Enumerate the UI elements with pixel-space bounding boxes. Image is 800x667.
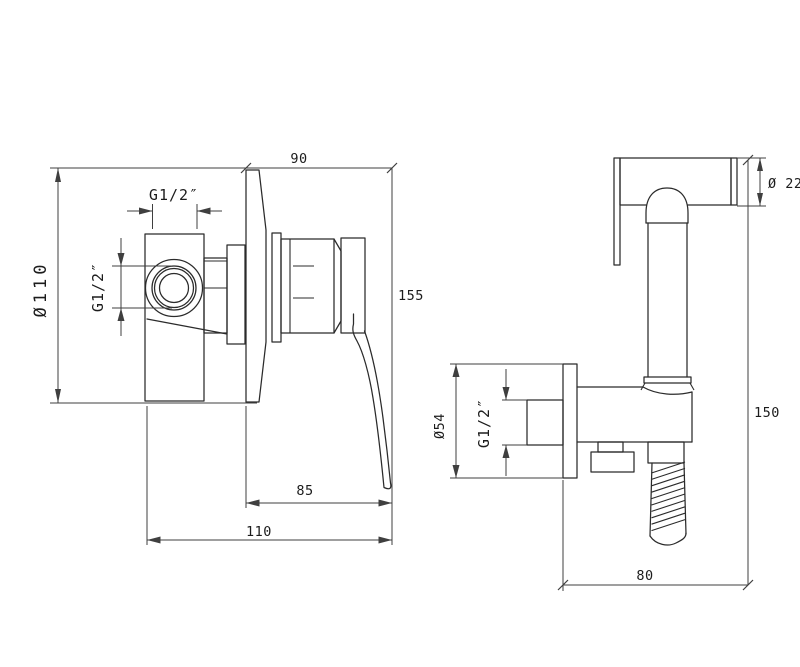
spiral-hose — [650, 462, 686, 545]
dim-label-head-diameter: Ø 22 — [768, 176, 800, 192]
mixer-dimensions: 90 Ø110 G1/2″ G1/2″ 155 85 — [31, 151, 424, 545]
trim-neck — [334, 239, 341, 333]
arrowhead — [197, 208, 211, 215]
hose-ferrule — [648, 442, 684, 463]
inlet-port-thread-outer — [152, 266, 196, 310]
mixer-side-view — [145, 170, 391, 489]
mixer-connector — [204, 258, 227, 333]
arrowhead — [757, 158, 763, 171]
mixer-body-chamfer — [147, 319, 227, 334]
bracket-neck — [598, 442, 623, 452]
faucet-technical-drawing: 90 Ø110 G1/2″ G1/2″ 155 85 — [0, 0, 800, 667]
sprayer-head-cap — [731, 158, 737, 205]
dim-label-bracket-depth: 80 — [636, 568, 653, 584]
trim-step-ring — [272, 233, 281, 342]
sprayer-head — [620, 158, 731, 205]
bracket-nut — [591, 452, 634, 472]
dim-label-plate-diameter: Ø110 — [31, 261, 51, 318]
arrowhead — [379, 500, 393, 507]
sprayer-dome — [646, 188, 688, 223]
mixer-sleeve — [227, 245, 245, 344]
dim-label-top-thread: G1/2″ — [149, 186, 199, 204]
arrowhead — [55, 168, 61, 182]
arrowhead — [118, 253, 125, 266]
dim-label-total-depth: 110 — [246, 524, 272, 540]
arrowhead — [139, 208, 153, 215]
hose-edge — [684, 463, 686, 534]
arrowhead — [503, 387, 510, 400]
handle-collar — [644, 377, 691, 383]
dim-label-overall-height: 155 — [398, 288, 424, 304]
dim-label-sprayer-height: 150 — [754, 405, 780, 421]
sprayer-trigger-lever — [614, 158, 620, 265]
inlet-port-thread-inner — [155, 269, 194, 308]
arrowhead — [757, 193, 763, 206]
bracket-saddle — [643, 387, 692, 394]
dim-label-handle-depth: 85 — [296, 483, 313, 499]
hose-edge — [650, 463, 652, 536]
technical-drawing-page: 90 Ø110 G1/2″ G1/2″ 155 85 — [0, 0, 800, 667]
trim-body — [281, 239, 334, 333]
arrowhead — [379, 537, 393, 544]
hose-spiral-hatch — [652, 462, 686, 531]
escutcheon-plate — [246, 170, 266, 402]
hose-end-cap — [650, 533, 686, 545]
arrowhead — [453, 364, 460, 377]
handle-lever — [353, 314, 391, 489]
sprayer-side-view — [527, 158, 737, 545]
handle-bell-flare — [690, 383, 694, 390]
arrowhead — [118, 308, 125, 321]
dim-label-inlet-thread: G1/2″ — [475, 398, 493, 448]
arrowhead — [246, 500, 260, 507]
arrowhead — [503, 445, 510, 458]
dim-label-flange-diameter: Ø54 — [432, 413, 448, 439]
dim-label-overall-depth: 90 — [290, 151, 307, 167]
arrowhead — [147, 537, 161, 544]
wall-flange — [563, 364, 577, 478]
inlet-port-bore — [160, 274, 189, 303]
sprayer-dimensions: Ø 22 150 Ø54 G1/2″ 80 — [432, 155, 800, 591]
dim-label-side-thread: G1/2″ — [89, 262, 107, 312]
inlet-stub — [527, 400, 563, 445]
arrowhead — [453, 465, 460, 478]
arrowhead — [55, 389, 61, 403]
